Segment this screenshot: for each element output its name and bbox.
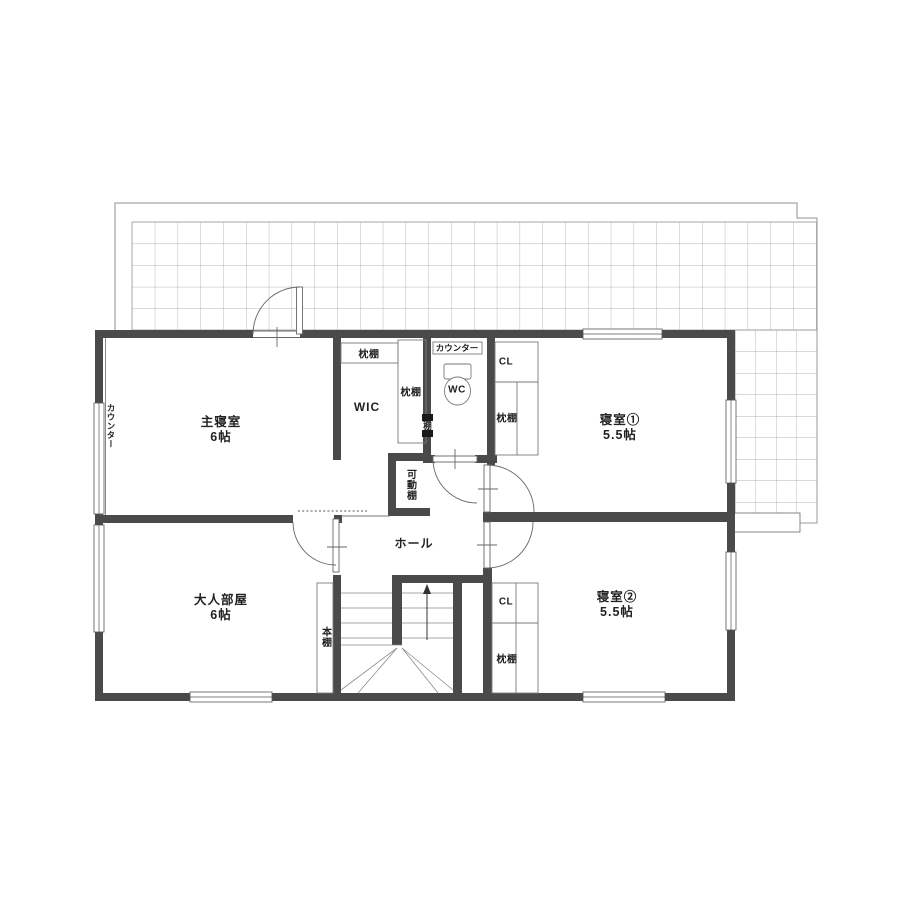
floor-plan-drawing xyxy=(0,0,910,910)
openings xyxy=(106,338,391,516)
label-hall: ホール xyxy=(394,535,433,552)
label-master-bedroom: 主寝室 6帖 xyxy=(201,415,242,445)
wall-bedroom1-bottom xyxy=(483,512,735,522)
stairs-up-arrow xyxy=(423,584,431,640)
window-bedroom2-right xyxy=(726,552,736,630)
window-master-left xyxy=(94,403,104,514)
label-closet2: CL xyxy=(499,597,513,608)
wall-master-adult xyxy=(95,515,293,523)
master-bedroom-size: 6帖 xyxy=(201,430,242,445)
wall-stairs-divider xyxy=(392,575,402,645)
label-bedroom1: 寝室① 5.5帖 xyxy=(600,413,641,443)
adult-room-door xyxy=(293,519,347,572)
label-wic-top-shelf: 枕棚 xyxy=(359,346,380,361)
bedroom2-name: 寝室② xyxy=(597,590,638,605)
master-bedroom-name: 主寝室 xyxy=(201,415,242,430)
wall-movable-shelf-left xyxy=(388,453,396,516)
label-bedroom2: 寝室② 5.5帖 xyxy=(597,590,638,620)
label-movable-shelf: 可動棚 xyxy=(403,469,418,501)
label-adult-room: 大人部屋 6帖 xyxy=(194,593,248,623)
window-bedroom1-right xyxy=(726,400,736,483)
bedroom1-door xyxy=(478,465,534,512)
label-bookshelf: 本棚 xyxy=(318,627,333,648)
floor-plan: 主寝室 6帖 大人部屋 6帖 寝室① 5.5帖 寝室② 5.5帖 ホール WIC… xyxy=(0,0,910,910)
wall-top-left xyxy=(95,330,253,338)
bedroom2-size: 5.5帖 xyxy=(597,605,638,620)
window-bedroom2-bottom xyxy=(583,692,665,702)
balcony-edge-panel xyxy=(733,513,800,532)
wall-stairs-right xyxy=(453,575,462,697)
bedroom1-size: 5.5帖 xyxy=(600,428,641,443)
wall-movable-shelf-bottom xyxy=(388,508,430,516)
window-bedroom1-top xyxy=(583,329,662,339)
wall-hall-bedroom2 xyxy=(483,568,492,697)
wall-wc-left xyxy=(423,338,431,461)
wall-top-right xyxy=(300,330,735,338)
bedroom1-name: 寝室① xyxy=(600,413,641,428)
wall-stairs-top xyxy=(392,575,492,583)
label-closet1-shelf: 枕棚 xyxy=(497,410,518,425)
adult-room-name: 大人部屋 xyxy=(194,593,248,608)
wall-master-right xyxy=(333,338,341,460)
label-wc-counter: カウンター xyxy=(436,342,479,354)
adult-room-size: 6帖 xyxy=(194,608,248,623)
balcony-grid-top xyxy=(132,222,817,330)
label-wic: WIC xyxy=(354,400,380,414)
bedroom2-door xyxy=(477,522,533,568)
label-master-counter: カウンター xyxy=(105,404,117,449)
window-adult-bottom xyxy=(190,692,272,702)
label-wc: WC xyxy=(448,385,466,396)
wall-wc-right xyxy=(487,338,495,465)
label-wall-shelf: 棚 xyxy=(423,420,432,432)
label-closet2-shelf: 枕棚 xyxy=(497,651,518,666)
wc-door xyxy=(433,449,477,503)
label-closet1: CL xyxy=(499,357,513,368)
label-wic-side-shelf: 枕棚 xyxy=(401,384,422,399)
wall-adult-right xyxy=(333,575,341,697)
balcony-grid-right xyxy=(735,330,817,523)
window-adult-left xyxy=(94,525,104,632)
